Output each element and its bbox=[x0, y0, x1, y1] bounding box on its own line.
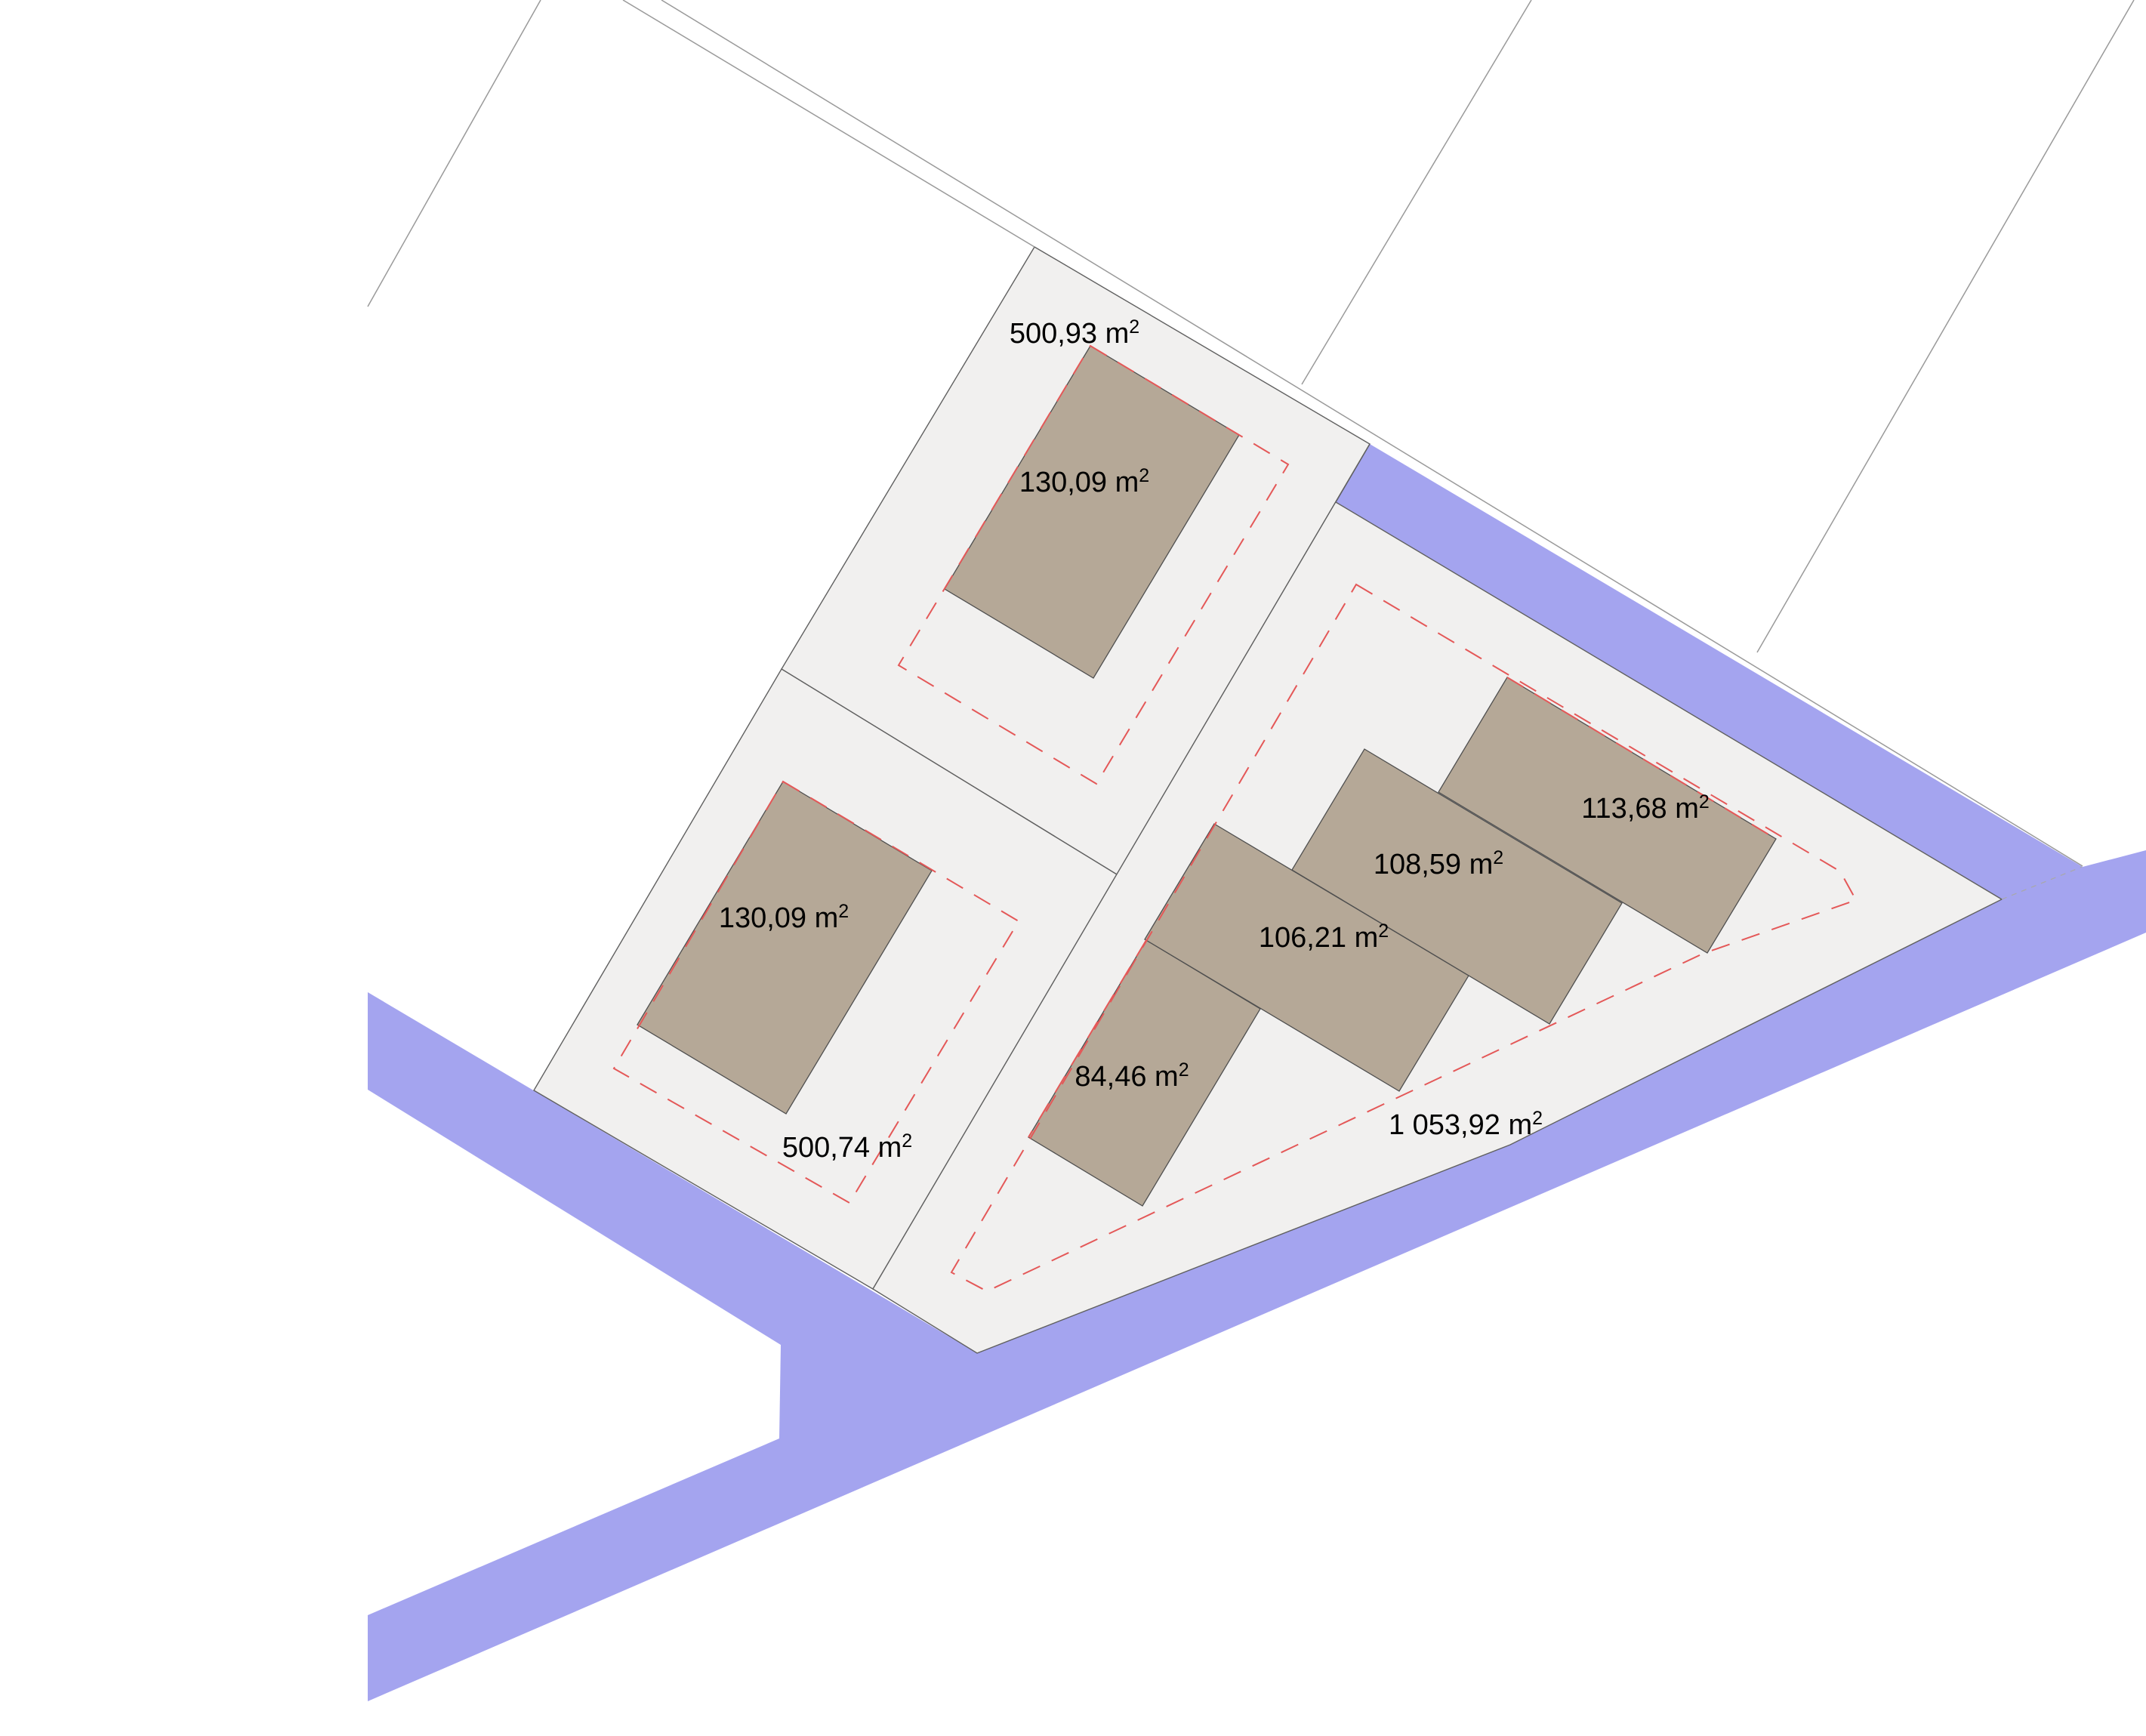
svg-text:500,74 m2: 500,74 m2 bbox=[782, 1130, 912, 1164]
svg-text:500,93 m2: 500,93 m2 bbox=[1010, 316, 1139, 350]
svg-text:1 053,92 m2: 1 053,92 m2 bbox=[1389, 1108, 1543, 1141]
svg-text:84,46 m2: 84,46 m2 bbox=[1075, 1059, 1189, 1093]
svg-text:130,09 m2: 130,09 m2 bbox=[1019, 465, 1149, 498]
svg-text:106,21 m2: 106,21 m2 bbox=[1259, 920, 1389, 954]
svg-text:113,68 m2: 113,68 m2 bbox=[1581, 791, 1710, 825]
svg-text:130,09 m2: 130,09 m2 bbox=[719, 901, 849, 934]
svg-text:108,59 m2: 108,59 m2 bbox=[1374, 847, 1503, 880]
